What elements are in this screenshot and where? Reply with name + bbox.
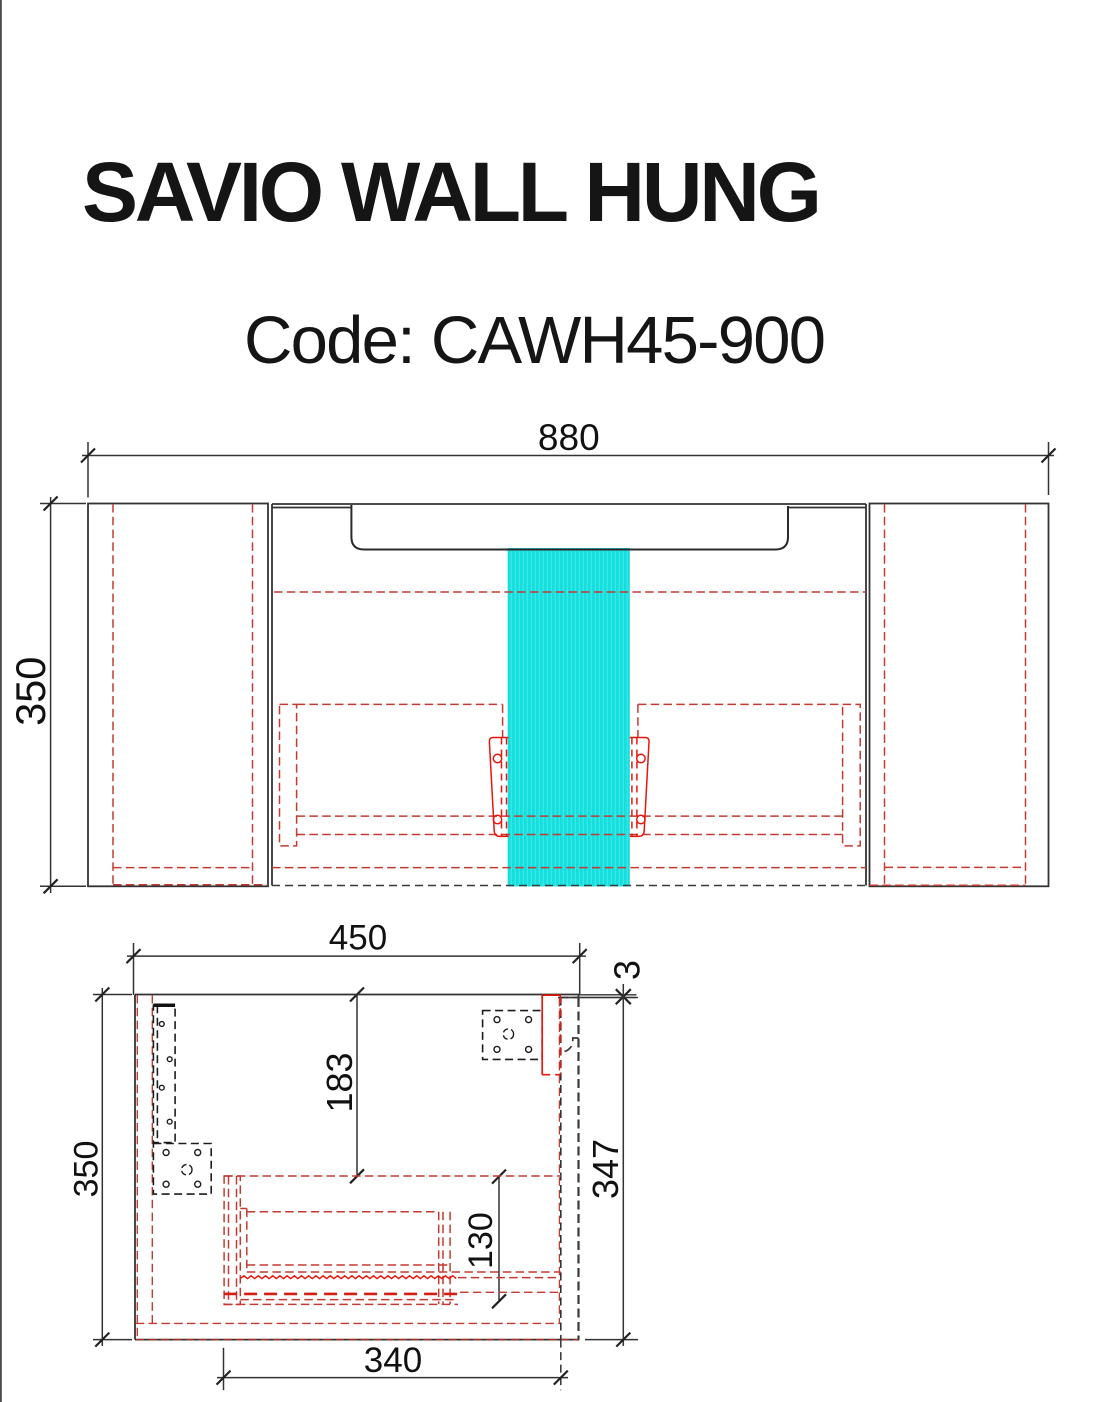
- svg-text:350: 350: [7, 657, 54, 726]
- svg-text:183: 183: [319, 1052, 360, 1112]
- svg-text:SAVIO WALL HUNG: SAVIO WALL HUNG: [82, 145, 822, 239]
- svg-text:347: 347: [585, 1139, 626, 1199]
- svg-text:3: 3: [607, 960, 648, 980]
- svg-text:Code: CAWH45-900: Code: CAWH45-900: [244, 303, 826, 378]
- svg-text:450: 450: [329, 919, 387, 958]
- svg-text:130: 130: [462, 1212, 500, 1269]
- svg-text:880: 880: [538, 417, 600, 458]
- svg-text:340: 340: [364, 1341, 422, 1380]
- svg-text:350: 350: [67, 1141, 105, 1198]
